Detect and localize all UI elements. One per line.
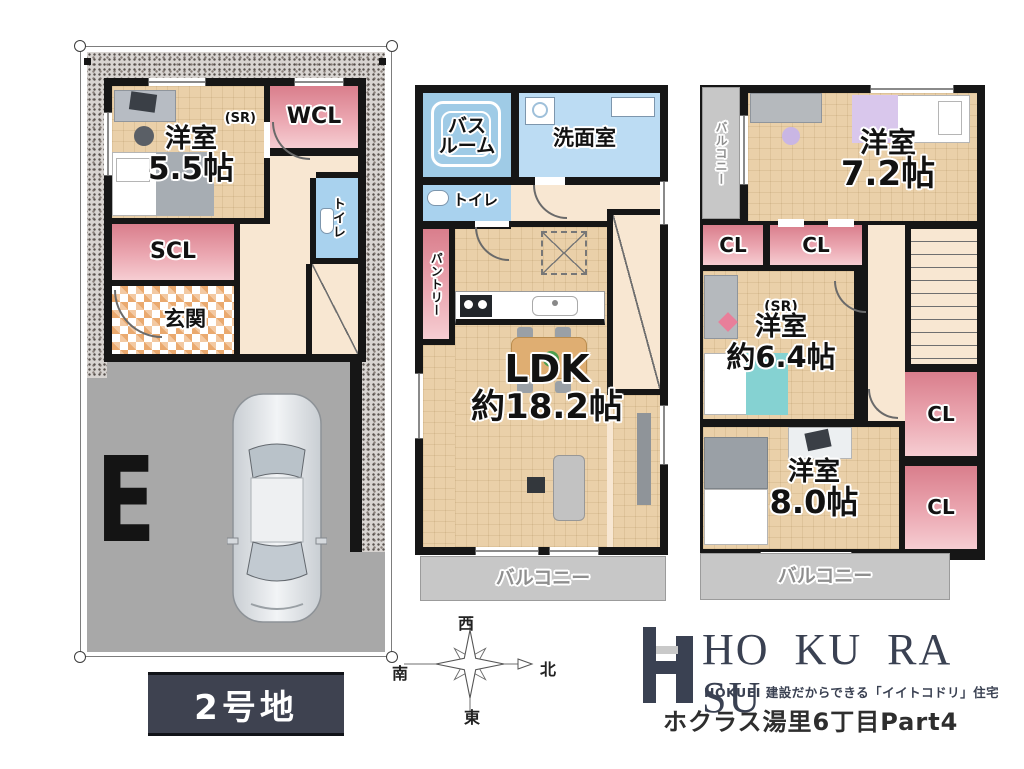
site-corner-marker xyxy=(74,40,86,52)
cl-label: CL xyxy=(802,235,829,256)
floorplan-flyer: { "site": { "lot_badge": "2号地", "parking… xyxy=(0,0,1024,769)
floor3-room2-label: (SR) 洋室 約6.4帖 xyxy=(711,281,851,391)
chair xyxy=(782,127,800,145)
floor3-plan: バルコニー 洋室 7.2帖 CL CL (SR) 洋室 約6.4帖 CL xyxy=(700,85,985,560)
compass-west-label: 西 xyxy=(458,610,474,634)
room-size: 約6.4帖 xyxy=(726,342,835,372)
survey-mark xyxy=(379,58,386,65)
floor3-cl-2: CL xyxy=(770,225,862,265)
logo-bar-light xyxy=(656,646,678,654)
cl-label: CL xyxy=(927,404,954,425)
brand-logo-mark xyxy=(643,627,695,705)
sofa xyxy=(553,455,585,521)
window xyxy=(294,78,344,86)
brand-tagline: HOKUEI 建設だからできる「イイトコドリ」住宅 xyxy=(704,682,999,701)
floor3-side-balcony: バルコニー xyxy=(702,87,740,219)
cl-label: CL xyxy=(719,235,746,256)
site-corner-marker xyxy=(386,40,398,52)
floor3-stairs xyxy=(911,229,977,364)
sink-icon xyxy=(532,296,578,316)
window xyxy=(475,547,539,555)
floor1-plan: WCL トイレ SCL 玄関 (SR) 洋室 5.5帖 xyxy=(104,78,366,362)
site-corner-marker xyxy=(386,651,398,663)
window xyxy=(870,85,954,93)
room-name: 洋室 xyxy=(165,126,217,153)
compass-north-label: 北 xyxy=(540,656,556,680)
window xyxy=(660,181,668,225)
scl-label: SCL xyxy=(150,240,196,263)
room-size: 7.2帖 xyxy=(841,157,935,193)
window xyxy=(415,373,423,439)
floor3-room2: (SR) 洋室 約6.4帖 xyxy=(703,271,854,419)
balcony-label: バルコニー xyxy=(496,569,591,588)
parking-mark: E xyxy=(96,452,156,549)
door-gap xyxy=(828,219,854,227)
window xyxy=(740,115,748,185)
plant-icon xyxy=(543,351,559,367)
window xyxy=(549,547,599,555)
window xyxy=(104,112,112,176)
floor1-stairs xyxy=(312,264,358,354)
side-table xyxy=(527,477,545,493)
floor1-toilet: トイレ xyxy=(316,178,358,258)
room-name: 洋室 xyxy=(755,314,807,341)
washing-machine-drum xyxy=(532,102,548,118)
cl-label: CL xyxy=(927,497,954,518)
faucet-icon xyxy=(552,300,558,306)
floor3-balcony: バルコニー xyxy=(700,553,950,600)
compass-east-label: 東 xyxy=(464,704,480,728)
toilet-label: トイレ xyxy=(453,193,498,209)
side-balcony-label: バルコニー xyxy=(715,121,727,186)
floor3-room3-label: 洋室 8.0帖 xyxy=(739,441,889,537)
stove-icon xyxy=(460,295,492,317)
floor2-pantry: パントリー xyxy=(423,229,449,339)
floor3-cl-3: CL xyxy=(905,372,977,456)
door-gap xyxy=(535,177,565,185)
floor2-plan: バス ルーム 洗面室 トイレ パントリー xyxy=(415,85,668,555)
lot-badge: 2号地 xyxy=(148,672,344,736)
kitchen-counter xyxy=(455,291,605,325)
room-name: 洋室 xyxy=(860,128,916,157)
dining-chair xyxy=(555,381,571,393)
pantry-label: パントリー xyxy=(430,252,443,317)
survey-mark xyxy=(84,58,91,65)
project-title: ホクラス湯里6丁目Part4 xyxy=(663,702,958,737)
floor3-cl-1: CL xyxy=(703,225,763,265)
floor3-room1-label: 洋室 7.2帖 xyxy=(808,113,968,208)
dining-chair xyxy=(517,381,533,393)
room-size: 8.0帖 xyxy=(770,486,859,520)
floor1-room-label: (SR) 洋室 5.5帖 xyxy=(116,90,266,208)
washroom-label: 洗面室 xyxy=(553,127,616,149)
lot-badge-label: 2号地 xyxy=(194,680,298,729)
room-tag: (SR) xyxy=(225,112,256,126)
site-corner-marker xyxy=(74,651,86,663)
floor2-washroom: 洗面室 xyxy=(519,93,660,177)
floor3-room1: 洋室 7.2帖 xyxy=(748,93,977,221)
tv-board xyxy=(637,413,651,505)
toilet-icon xyxy=(427,190,449,206)
compass-south-label: 南 xyxy=(392,660,408,684)
door-gap xyxy=(778,219,804,227)
bathroom-label-line1: バス xyxy=(448,117,486,137)
window xyxy=(660,405,668,465)
vanity-counter xyxy=(611,97,655,117)
floor1-scl: SCL xyxy=(112,224,234,280)
ceiling-open-mark xyxy=(541,231,587,275)
floor2-balcony: バルコニー xyxy=(420,556,666,601)
floor3-room3: 洋室 8.0帖 xyxy=(703,427,899,549)
room-name: 洋室 xyxy=(788,459,840,486)
floor2-ldk-left xyxy=(423,345,455,547)
balcony-label: バルコニー xyxy=(778,567,873,586)
bathroom-label-line2: ルーム xyxy=(439,137,495,157)
room-size: 5.5帖 xyxy=(148,153,234,186)
floor2-bathroom: バス ルーム xyxy=(423,93,511,177)
floor3-cl-4: CL xyxy=(905,466,977,549)
logo-bar-cross xyxy=(643,661,693,674)
toilet-icon xyxy=(320,208,334,234)
car-top-view xyxy=(227,390,327,626)
site-wall-stub xyxy=(350,362,362,552)
window xyxy=(148,78,206,86)
floor2-toilet: トイレ xyxy=(423,185,511,221)
entrance-label: 玄関 xyxy=(164,308,206,330)
floor2-stairs xyxy=(613,215,660,389)
